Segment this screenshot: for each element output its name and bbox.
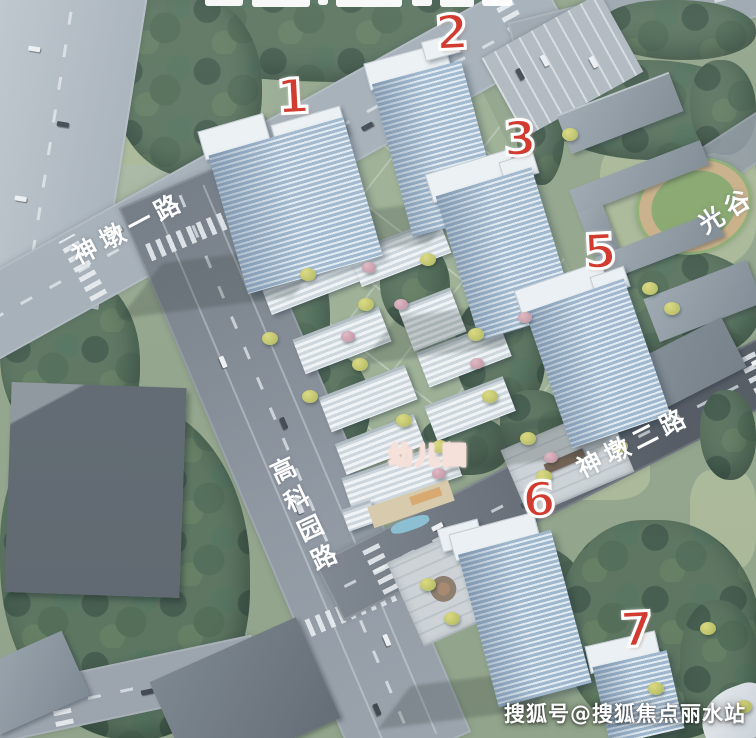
watermark: 搜狐号@搜狐焦点丽水站 (504, 698, 746, 728)
poi-label: 幼儿园 (389, 436, 470, 471)
cropped-title-fragment (440, 0, 474, 7)
building-number-marker: 2 (434, 8, 470, 58)
building-number-marker: 7 (619, 605, 655, 655)
building-number-marker: 3 (502, 114, 538, 164)
building-number-marker: 1 (275, 72, 311, 122)
cropped-title-fragment (318, 0, 328, 5)
cropped-title-fragment (252, 0, 310, 7)
cropped-title-fragment (412, 0, 432, 6)
building-number-marker: 5 (582, 227, 618, 277)
cropped-title-fragment (482, 0, 512, 6)
aerial-render: 123567 神墩一路神墩二路高科园路光谷 幼儿园 搜狐号@搜狐焦点丽水站 (0, 0, 756, 738)
cropped-title-fragment (205, 0, 243, 6)
building-number-marker: 6 (521, 475, 557, 525)
cropped-title-fragment (336, 0, 402, 7)
